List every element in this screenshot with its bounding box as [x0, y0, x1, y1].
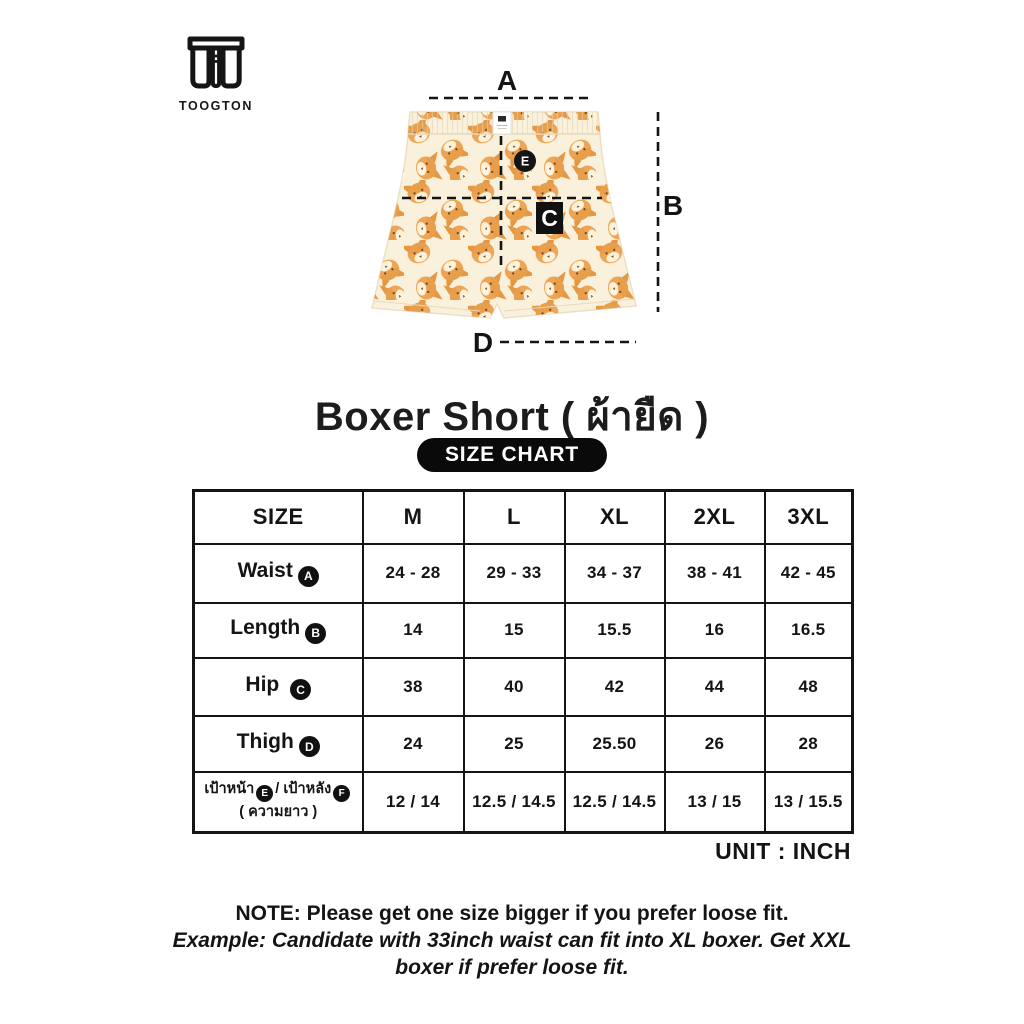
- diagram-label-b: B: [663, 190, 683, 221]
- cell-length-3xl: 16.5: [765, 603, 853, 658]
- header-xl: XL: [565, 491, 665, 544]
- marker-a-badge: A: [298, 566, 319, 587]
- table-header-row: SIZE M L XL 2XL 3XL: [194, 491, 853, 544]
- row-label-length: LengthB: [194, 603, 363, 658]
- header-size: SIZE: [194, 491, 363, 544]
- cell-hip-m: 38: [363, 658, 464, 716]
- row-label-waist: WaistA: [194, 544, 363, 603]
- cell-hip-xl: 42: [565, 658, 665, 716]
- table-row-waist: WaistA 24 - 28 29 - 33 34 - 37 38 - 41 4…: [194, 544, 853, 603]
- unit-label: UNIT : INCH: [715, 838, 851, 865]
- marker-d-badge: D: [299, 736, 320, 757]
- note-line-2: Example: Candidate with 33inch waist can…: [0, 927, 1024, 954]
- note-line-3: boxer if prefer loose fit.: [0, 954, 1024, 981]
- diagram-label-c-box: C: [536, 202, 563, 234]
- row-label-crotch: เป้าหน้าE/ เป้าหลังF ( ความยาว ): [194, 772, 363, 833]
- cell-waist-l: 29 - 33: [464, 544, 565, 603]
- cell-crotch-l: 12.5 / 14.5: [464, 772, 565, 833]
- marker-f-badge: F: [333, 785, 350, 802]
- diagram-label-d: D: [473, 327, 493, 358]
- brand-name: TOOGTON: [178, 99, 254, 113]
- table-row-length: LengthB 14 15 15.5 16 16.5: [194, 603, 853, 658]
- row-label-hip: Hip C: [194, 658, 363, 716]
- table-row-crotch: เป้าหน้าE/ เป้าหลังF ( ความยาว ) 12 / 14…: [194, 772, 853, 833]
- marker-c-badge: C: [290, 679, 311, 700]
- cell-crotch-3xl: 13 / 15.5: [765, 772, 853, 833]
- diagram-label-e-badge: E: [514, 150, 536, 172]
- diagram-label-a: A: [497, 65, 517, 96]
- cell-waist-m: 24 - 28: [363, 544, 464, 603]
- marker-e-badge: E: [256, 785, 273, 802]
- header-2xl: 2XL: [665, 491, 765, 544]
- cell-thigh-2xl: 26: [665, 716, 765, 772]
- table-row-hip: Hip C 38 40 42 44 48: [194, 658, 853, 716]
- header-l: L: [464, 491, 565, 544]
- cell-crotch-xl: 12.5 / 14.5: [565, 772, 665, 833]
- cell-waist-xl: 34 - 37: [565, 544, 665, 603]
- cell-length-m: 14: [363, 603, 464, 658]
- cell-crotch-2xl: 13 / 15: [665, 772, 765, 833]
- marker-b-badge: B: [305, 623, 326, 644]
- cell-hip-l: 40: [464, 658, 565, 716]
- size-chart-badge: SIZE CHART: [417, 438, 607, 472]
- cell-waist-2xl: 38 - 41: [665, 544, 765, 603]
- cell-thigh-xl: 25.50: [565, 716, 665, 772]
- cell-length-xl: 15.5: [565, 603, 665, 658]
- boxer-short-illustration: [372, 112, 636, 318]
- row-label-crotch-sub: ( ความยาว ): [195, 802, 362, 824]
- diagram-label-c: C: [541, 205, 558, 231]
- diagram-label-e: E: [521, 155, 529, 169]
- cell-waist-3xl: 42 - 45: [765, 544, 853, 603]
- header-m: M: [363, 491, 464, 544]
- boxer-shorts-icon: [183, 34, 249, 92]
- header-3xl: 3XL: [765, 491, 853, 544]
- cell-hip-3xl: 48: [765, 658, 853, 716]
- row-label-thigh: ThighD: [194, 716, 363, 772]
- boxer-measurement-diagram: A B D C E: [340, 60, 700, 360]
- brand-logo: TOOGTON: [178, 34, 254, 113]
- cell-thigh-m: 24: [363, 716, 464, 772]
- cell-thigh-3xl: 28: [765, 716, 853, 772]
- table-row-thigh: ThighD 24 25 25.50 26 28: [194, 716, 853, 772]
- cell-crotch-m: 12 / 14: [363, 772, 464, 833]
- cell-thigh-l: 25: [464, 716, 565, 772]
- note-line-1: NOTE: Please get one size bigger if you …: [0, 900, 1024, 927]
- cell-length-2xl: 16: [665, 603, 765, 658]
- cell-hip-2xl: 44: [665, 658, 765, 716]
- note-block: NOTE: Please get one size bigger if you …: [0, 900, 1024, 981]
- size-chart-table: SIZE M L XL 2XL 3XL WaistA 24 - 28 29 - …: [192, 489, 854, 834]
- cell-length-l: 15: [464, 603, 565, 658]
- waistband-label: [493, 112, 511, 134]
